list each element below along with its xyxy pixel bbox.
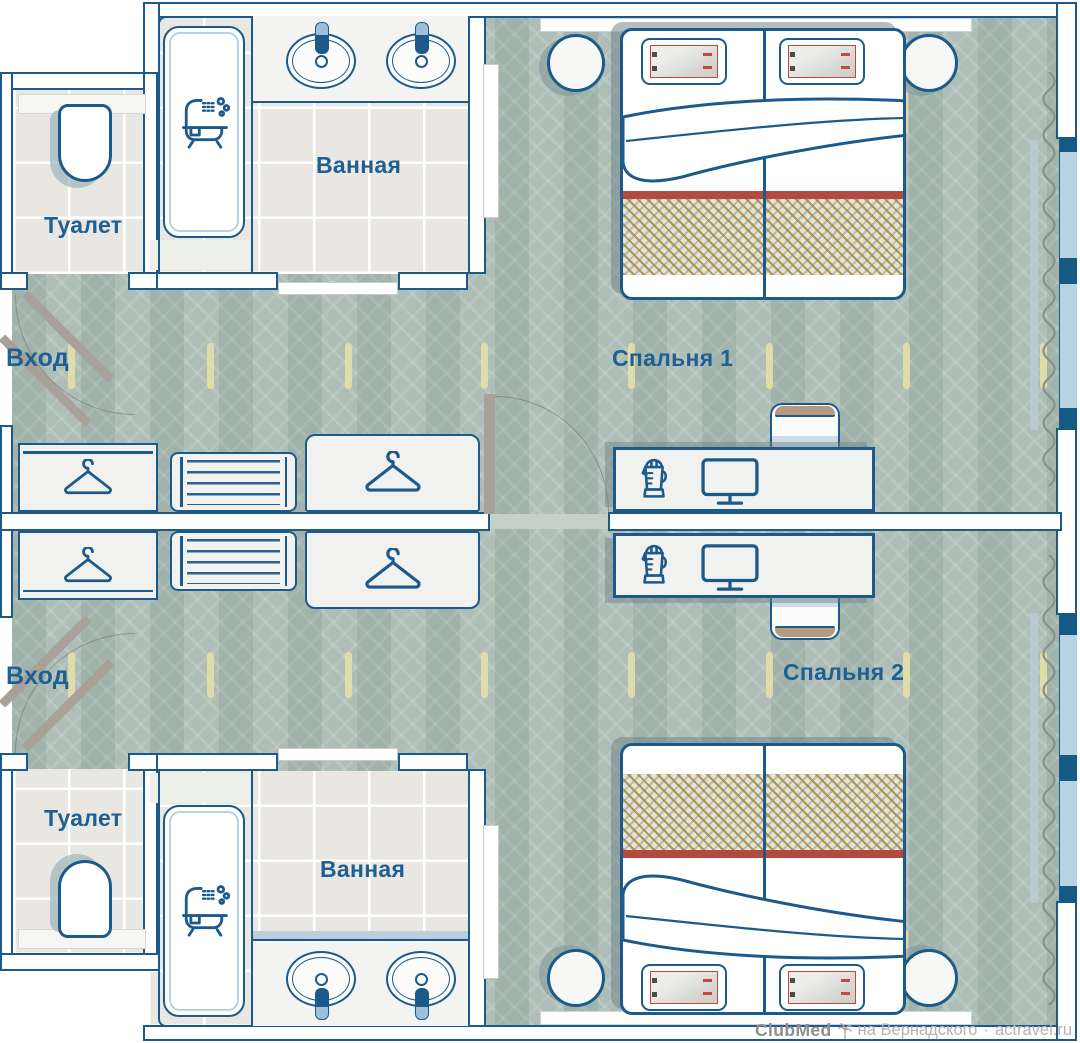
hanger-icon — [62, 459, 114, 497]
shelf-icon — [187, 539, 280, 584]
window1-frame — [1060, 137, 1077, 152]
double-bed-2 — [620, 743, 906, 1015]
wardrobe-large — [305, 531, 480, 609]
carpet-accent — [207, 652, 214, 698]
carpet-accent — [481, 652, 488, 698]
watermark-location: на Вернадского — [858, 1021, 978, 1040]
window1-frame — [1060, 258, 1077, 284]
carpet-accent — [766, 652, 773, 698]
nightstand — [547, 34, 605, 92]
hanger-icon — [62, 547, 114, 585]
bedroom2-label: Спальня 2 — [783, 659, 904, 686]
bathtub-icon — [175, 92, 233, 150]
entrance1-label: Вход — [6, 344, 69, 373]
double-bed-1 — [620, 28, 906, 300]
pillow-print — [650, 971, 718, 1004]
watermark-separator: · — [983, 1021, 989, 1040]
hanger-icon — [363, 451, 423, 495]
shelf-unit — [170, 531, 297, 591]
outside-area-bottom-left — [0, 969, 148, 1043]
wall-left-upper — [0, 72, 13, 290]
pillow-print — [650, 45, 718, 78]
kettle-icon — [632, 455, 676, 505]
toilet2-bottom-wall — [0, 953, 160, 971]
hanger-icon — [363, 548, 423, 592]
carpet-accent — [345, 652, 352, 698]
watermark-brand: ClubMed — [755, 1020, 832, 1041]
curtain-icon — [1036, 72, 1062, 492]
nightstand — [547, 949, 605, 1007]
pillow-print — [788, 45, 856, 78]
desk1 — [613, 447, 875, 512]
bedroom1-label: Спальня 1 — [612, 345, 733, 372]
pillow — [779, 964, 865, 1011]
wardrobe — [18, 531, 158, 600]
wall-left-lower — [0, 753, 13, 971]
nightstand — [900, 949, 958, 1007]
bathtub-icon — [175, 880, 233, 938]
faucet-icon — [315, 22, 329, 54]
bathroom1-bottom-wall-left — [140, 272, 278, 290]
duvet-fold — [620, 87, 906, 199]
toilet2-label: Туалет — [44, 805, 122, 832]
toilet2-door-stub-left — [0, 753, 28, 771]
faucet-icon — [415, 988, 429, 1020]
window2-frame — [1060, 755, 1077, 781]
pillow-print — [788, 971, 856, 1004]
pillow — [641, 964, 727, 1011]
duvet-fold — [620, 858, 906, 970]
bathroom1-bottom-wall-right — [398, 272, 468, 290]
shelf-unit — [170, 452, 297, 512]
carpet-accent — [481, 343, 488, 389]
toilet-icon — [58, 860, 112, 938]
palm-icon — [838, 1022, 852, 1040]
curtain-icon — [1036, 555, 1062, 1005]
carpet-accent — [207, 343, 214, 389]
desk2 — [613, 533, 875, 598]
bathroom2-label: Ванная — [320, 856, 405, 883]
carpet-accent — [903, 343, 910, 389]
floor-plan: Спальня 1 — [0, 0, 1080, 1043]
toilet-icon — [58, 104, 112, 182]
monitor-icon — [698, 542, 762, 592]
toilet1-door-stub-right — [128, 272, 158, 290]
toilet2-door-stub-right — [128, 753, 158, 771]
window2-frame — [1060, 886, 1077, 903]
toilet1-top-wall — [0, 72, 160, 90]
kettle-icon — [632, 541, 676, 591]
nightstand — [900, 34, 958, 92]
desk-chair — [770, 594, 840, 640]
watermark: ClubMed на Вернадского · actravel.ru — [755, 1020, 1072, 1041]
faucet-icon — [415, 22, 429, 54]
wardrobe — [18, 443, 158, 512]
pillow — [641, 38, 727, 85]
connecting-door-leaf — [484, 394, 495, 514]
desk-chair — [770, 403, 840, 449]
bathroom1-label: Ванная — [316, 152, 401, 179]
connecting-door-threshold — [490, 514, 608, 529]
bathroom2-side-door-leaf — [483, 825, 499, 979]
bathroom2-door-leaf — [278, 748, 398, 761]
entrance2-label: Вход — [6, 662, 69, 691]
bathroom1-door-leaf — [278, 282, 398, 295]
outside-area-top-left — [0, 0, 148, 74]
window1-frame — [1060, 408, 1077, 430]
carpet-accent — [766, 343, 773, 389]
toilet1-label: Туалет — [44, 212, 122, 239]
monitor-icon — [698, 456, 762, 506]
window2-frame — [1060, 613, 1077, 635]
shelf-icon — [187, 460, 280, 505]
watermark-site: actravel.ru — [995, 1021, 1072, 1040]
bathroom2-top-wall-right — [398, 753, 468, 771]
pillow — [779, 38, 865, 85]
central-wall-left — [0, 512, 490, 531]
carpet-accent — [345, 343, 352, 389]
central-wall-right — [608, 512, 1062, 531]
wardrobe-large — [305, 434, 480, 512]
faucet-icon — [315, 988, 329, 1020]
carpet-accent — [628, 652, 635, 698]
toilet1-door-stub-left — [0, 272, 28, 290]
bathroom1-side-door-leaf — [483, 64, 499, 218]
